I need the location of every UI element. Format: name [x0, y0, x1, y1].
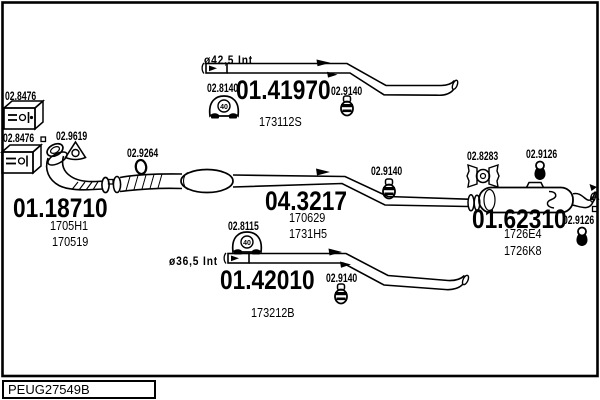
label-seal-ring: 02.9264 [127, 147, 158, 159]
label-gasket-box-2: 02.8476 [3, 132, 34, 144]
ref-front-pipe-2: 170519 [52, 236, 88, 249]
label-clamp-bottom: 02.9140 [326, 272, 357, 284]
flow-arrow [317, 60, 331, 67]
rubber-mount-center-icon: 40 [233, 232, 262, 255]
hanger-lower-icon [576, 228, 587, 247]
tailpipe-marker-a: A [591, 190, 600, 202]
label-mount-top: 02.8140 [207, 82, 238, 94]
gasket-box-1-icon [4, 101, 43, 129]
label-bracket-rear: 02.8283 [467, 150, 498, 162]
label-gasket-box-1: 02.8476 [5, 90, 36, 102]
part-number-top-pipe: 01.41970 [236, 77, 331, 104]
clamp-center-icon [383, 179, 395, 199]
drawing-code: PEUG27549B [8, 382, 90, 397]
flow-arrow [316, 169, 330, 176]
drawing-code-box: PEUG27549B [2, 380, 156, 399]
clamp-bottom-icon [335, 284, 347, 304]
front-pipe-drawing [45, 141, 113, 192]
ref-rear-silencer-1: 1726E4 [504, 228, 542, 241]
rubber-mount-top-icon: 40 [210, 96, 239, 119]
bracket-rear-icon [467, 165, 499, 187]
label-clamp-center: 02.9140 [371, 165, 402, 177]
ref-front-pipe-1: 1705H1 [50, 220, 88, 233]
clamp-top-icon [341, 96, 353, 116]
seal-ring-icon [135, 159, 147, 174]
diameter-label-bottom-pipe: ø36,5 Int [169, 255, 218, 267]
ref-center-pipe-1: 170629 [289, 212, 325, 225]
ref-bottom-pipe: 173212B [251, 307, 295, 320]
mount-size-text: 40 [243, 240, 251, 247]
gasket-box-2-icon [2, 145, 41, 173]
part-number-bottom-pipe: 01.42010 [220, 267, 315, 294]
ref-top-pipe: 173112S [259, 116, 302, 129]
flow-arrow [329, 249, 343, 256]
exhaust-parts-diagram: 40 [0, 0, 600, 400]
mount-size-text: 40 [220, 104, 228, 111]
label-hanger-upper: 02.9126 [526, 148, 557, 160]
ref-rear-silencer-2: 1726K8 [504, 245, 542, 258]
diameter-label-top-pipe: ø42,5 Int [204, 54, 253, 66]
label-flange-gasket: 02.9619 [56, 130, 87, 142]
hanger-upper-icon [534, 162, 545, 181]
label-mount-center: 02.8115 [228, 220, 259, 232]
label-clamp-top: 02.9140 [331, 85, 362, 97]
label-hanger-lower: 02.9126 [563, 214, 594, 226]
ref-center-pipe-2: 1731H5 [289, 228, 327, 241]
